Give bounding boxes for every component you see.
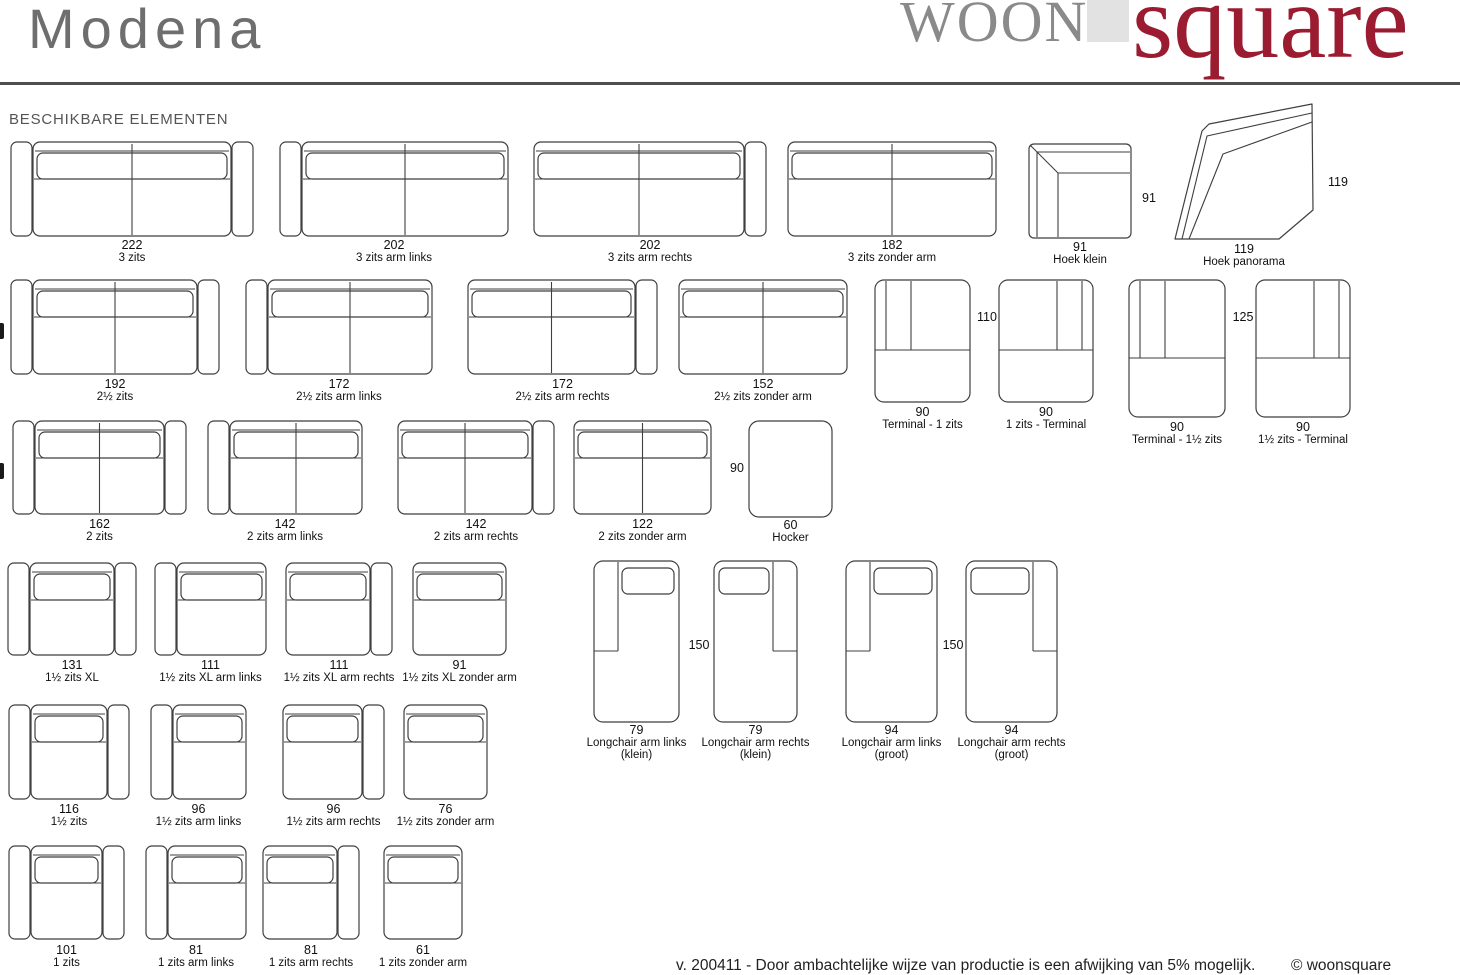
element-name2: (klein): [701, 749, 809, 762]
element-dim: 111: [284, 659, 395, 672]
element-label: 1311½ zits XL: [45, 659, 99, 684]
catalog-page: Modena WOON square BESCHIKBARE ELEMENTEN…: [0, 0, 1460, 974]
element-name: 2 zits arm links: [247, 531, 323, 544]
sofa-drawing: [573, 420, 712, 515]
sofa-drawing: [403, 704, 488, 800]
element-label: 2223 zits: [119, 239, 146, 264]
element-label: 811 zits arm rechts: [269, 944, 353, 969]
element-1-zits-arm-links: 811 zits arm links: [145, 845, 247, 940]
element-name: 2½ zits arm links: [296, 391, 382, 404]
element-dim: 172: [516, 378, 610, 391]
element-dim: 122: [598, 518, 686, 531]
sofa-drawing: [154, 562, 267, 656]
element-label: 79Longchair arm links(klein): [587, 724, 687, 762]
element-label: 60Hocker: [772, 519, 808, 544]
element-name: 1 zits arm rechts: [269, 957, 353, 970]
element-2-zits-arm-rechts: 1422 zits arm rechts: [397, 420, 555, 515]
element-name: Hocker: [772, 532, 808, 545]
element-longchair-arm-links-groot: 94Longchair arm links(groot): [845, 560, 938, 723]
element-dim: 202: [356, 239, 432, 252]
element-1half-zits: 1161½ zits: [8, 704, 130, 800]
sofa-drawing: [10, 141, 254, 237]
element-name: 2 zits zonder arm: [598, 531, 686, 544]
element-1half-zits-arm-links: 961½ zits arm links: [150, 704, 247, 800]
element-label: 1111½ zits XL arm links: [159, 659, 261, 684]
element-dim: 96: [156, 803, 242, 816]
element-dim: 94: [957, 724, 1065, 737]
element-dim: 91: [402, 659, 517, 672]
element-1half-zits-xl-arm-rechts: 1111½ zits XL arm rechts: [285, 562, 393, 656]
element-dim: 172: [296, 378, 382, 391]
element-1-zits-terminal: 901 zits - Terminal: [998, 279, 1094, 403]
terminal-drawing: [874, 279, 971, 403]
element-longchair-arm-rechts-groot: 94Longchair arm rechts(groot): [965, 560, 1058, 723]
element-dim: 96: [287, 803, 381, 816]
element-label: 90Terminal - 1½ zits: [1132, 421, 1222, 446]
element-dim: 91: [1053, 241, 1107, 254]
element-name2: (groot): [957, 749, 1065, 762]
element-label: 91Hoek klein: [1053, 241, 1107, 266]
sofa-drawing: [8, 704, 130, 800]
element-name: 1½ zits XL arm links: [159, 672, 261, 685]
element-name: 1½ zits zonder arm: [397, 816, 495, 829]
element-label: 901 zits - Terminal: [1006, 406, 1086, 431]
sofa-drawing: [145, 845, 247, 940]
element-name: 2 zits: [86, 531, 113, 544]
element-name: 3 zits zonder arm: [848, 252, 936, 265]
longchair-drawing: [713, 560, 798, 723]
element-label: 94Longchair arm rechts(groot): [957, 724, 1065, 762]
sofa-drawing: [8, 845, 125, 940]
element-dim: 192: [97, 378, 133, 391]
element-2half-zits-arm-links: 1722½ zits arm links: [245, 279, 433, 375]
hoek-klein-drawing: [1028, 143, 1132, 239]
element-dim: 90: [1006, 406, 1086, 419]
element-name: 1½ zits - Terminal: [1258, 434, 1348, 447]
element-1half-zits-xl-arm-links: 1111½ zits XL arm links: [154, 562, 267, 656]
element-1half-zits-terminal: 901½ zits - Terminal: [1255, 279, 1351, 418]
element-name: 2½ zits arm rechts: [516, 391, 610, 404]
element-dim: 116: [51, 803, 87, 816]
element-name: 1½ zits XL zonder arm: [402, 672, 517, 685]
element-dim: 79: [701, 724, 809, 737]
element-name: 3 zits arm links: [356, 252, 432, 265]
element-label: 1161½ zits: [51, 803, 87, 828]
element-dim: 81: [158, 944, 234, 957]
longchair-drawing: [593, 560, 680, 723]
element-label: 901½ zits - Terminal: [1258, 421, 1348, 446]
element-name2: (klein): [587, 749, 687, 762]
element-3-zits: 2223 zits: [10, 141, 254, 237]
side-dimension: 150: [689, 638, 710, 652]
element-label: 1922½ zits: [97, 378, 133, 403]
element-label: 90Terminal - 1 zits: [882, 406, 963, 431]
element-terminal-1-zits: 90Terminal - 1 zits: [874, 279, 971, 403]
element-name: 2½ zits: [97, 391, 133, 404]
element-1half-zits-xl-zonder-arm: 911½ zits XL zonder arm: [412, 562, 507, 656]
element-name: 2 zits arm rechts: [434, 531, 518, 544]
element-dim: 182: [848, 239, 936, 252]
side-dimension: 150: [943, 638, 964, 652]
sofa-drawing: [282, 704, 385, 800]
element-name: 1 zits zonder arm: [379, 957, 467, 970]
element-label: 1522½ zits zonder arm: [714, 378, 812, 403]
element-dim: 142: [434, 518, 518, 531]
longchair-drawing: [845, 560, 938, 723]
sofa-drawing: [467, 279, 658, 375]
element-2half-zits-arm-rechts: 1722½ zits arm rechts: [467, 279, 658, 375]
sofa-drawing: [262, 845, 360, 940]
element-name: Longchair arm links: [842, 737, 942, 750]
element-dim: 111: [159, 659, 261, 672]
element-name: 1½ zits: [51, 816, 87, 829]
element-name: 3 zits arm rechts: [608, 252, 692, 265]
sofa-drawing: [245, 279, 433, 375]
clipped-edge-mark: [0, 323, 4, 339]
element-name: Longchair arm rechts: [957, 737, 1065, 750]
element-2half-zits: 1922½ zits: [10, 279, 220, 375]
element-longchair-arm-rechts-klein: 79Longchair arm rechts(klein): [713, 560, 798, 723]
element-name: 1½ zits XL arm rechts: [284, 672, 395, 685]
sofa-drawing: [787, 141, 997, 237]
terminal-drawing: [1128, 279, 1226, 418]
element-name: Longchair arm links: [587, 737, 687, 750]
sofa-drawing: [678, 279, 848, 375]
element-dim: 142: [247, 518, 323, 531]
element-hoek-panorama: 119Hoek panorama: [1173, 101, 1315, 241]
element-dim: 202: [608, 239, 692, 252]
element-hocker: 60Hocker: [748, 420, 833, 518]
element-name: 3 zits: [119, 252, 146, 265]
sofa-drawing: [12, 420, 187, 515]
element-1-zits: 1011 zits: [8, 845, 125, 940]
element-label: 1111½ zits XL arm rechts: [284, 659, 395, 684]
sofa-drawing: [150, 704, 247, 800]
element-dim: 81: [269, 944, 353, 957]
element-terminal-1half-zits: 90Terminal - 1½ zits: [1128, 279, 1226, 418]
side-dimension: 125: [1233, 310, 1254, 324]
element-2-zits: 1622 zits: [12, 420, 187, 515]
element-label: 1222 zits zonder arm: [598, 518, 686, 543]
element-2-zits-zonder-arm: 1222 zits zonder arm: [573, 420, 712, 515]
element-dim: 131: [45, 659, 99, 672]
element-dim: 222: [119, 239, 146, 252]
side-dimension: 119: [1328, 175, 1348, 189]
side-dimension: 91: [1142, 191, 1156, 205]
element-name: Hoek klein: [1053, 254, 1107, 267]
element-name: 2½ zits zonder arm: [714, 391, 812, 404]
sofa-drawing: [397, 420, 555, 515]
element-name: Terminal - 1 zits: [882, 419, 963, 432]
element-label: 1722½ zits arm rechts: [516, 378, 610, 403]
element-dim: 90: [1258, 421, 1348, 434]
element-3-zits-arm-rechts: 2023 zits arm rechts: [533, 141, 767, 237]
element-name: 1½ zits arm links: [156, 816, 242, 829]
element-name: 1½ zits XL: [45, 672, 99, 685]
element-label: 811 zits arm links: [158, 944, 234, 969]
clipped-edge-mark: [0, 463, 4, 479]
element-dim: 60: [772, 519, 808, 532]
sofa-drawing: [533, 141, 767, 237]
footer-version-note: v. 200411 - Door ambachtelijke wijze van…: [676, 957, 1255, 975]
element-longchair-arm-links-klein: 79Longchair arm links(klein): [593, 560, 680, 723]
sofa-drawing: [383, 845, 463, 940]
element-hoek-klein: 91Hoek klein: [1028, 143, 1132, 239]
element-label: 2023 zits arm rechts: [608, 239, 692, 264]
terminal-drawing: [998, 279, 1094, 403]
element-dim: 61: [379, 944, 467, 957]
element-dim: 76: [397, 803, 495, 816]
sofa-drawing: [279, 141, 509, 237]
element-1half-zits-xl: 1311½ zits XL: [7, 562, 137, 656]
element-dim: 90: [882, 406, 963, 419]
element-name: 1 zits - Terminal: [1006, 419, 1086, 432]
side-dimension: 90: [730, 461, 744, 475]
element-label: 911½ zits XL zonder arm: [402, 659, 517, 684]
element-name: Terminal - 1½ zits: [1132, 434, 1222, 447]
side-dimension: 110: [977, 310, 997, 324]
sofa-drawing: [207, 420, 363, 515]
element-label: 1011 zits: [53, 944, 80, 969]
element-label: 761½ zits zonder arm: [397, 803, 495, 828]
element-2half-zits-zonder-arm: 1522½ zits zonder arm: [678, 279, 848, 375]
element-2-zits-arm-links: 1422 zits arm links: [207, 420, 363, 515]
element-label: 611 zits zonder arm: [379, 944, 467, 969]
element-label: 1722½ zits arm links: [296, 378, 382, 403]
element-label: 961½ zits arm links: [156, 803, 242, 828]
sofa-drawing: [412, 562, 507, 656]
longchair-drawing: [965, 560, 1058, 723]
elements-canvas: 2223 zits2023 zits arm links2023 zits ar…: [0, 0, 1460, 974]
element-name: Hoek panorama: [1203, 256, 1285, 269]
sofa-drawing: [285, 562, 393, 656]
element-name2: (groot): [842, 749, 942, 762]
element-label: 1422 zits arm rechts: [434, 518, 518, 543]
element-label: 1823 zits zonder arm: [848, 239, 936, 264]
terminal-drawing: [1255, 279, 1351, 418]
element-dim: 79: [587, 724, 687, 737]
element-dim: 101: [53, 944, 80, 957]
element-dim: 152: [714, 378, 812, 391]
element-1-zits-arm-rechts: 811 zits arm rechts: [262, 845, 360, 940]
footer-copyright: © woonsquare: [1291, 957, 1391, 975]
sofa-drawing: [10, 279, 220, 375]
element-label: 2023 zits arm links: [356, 239, 432, 264]
element-1-zits-zonder-arm: 611 zits zonder arm: [383, 845, 463, 940]
element-name: Longchair arm rechts: [701, 737, 809, 750]
element-dim: 119: [1203, 243, 1285, 256]
element-label: 119Hoek panorama: [1203, 243, 1285, 268]
hoek-panorama-drawing: [1173, 101, 1315, 241]
element-name: 1½ zits arm rechts: [287, 816, 381, 829]
element-label: 79Longchair arm rechts(klein): [701, 724, 809, 762]
element-name: 1 zits: [53, 957, 80, 970]
element-label: 961½ zits arm rechts: [287, 803, 381, 828]
element-1half-zits-arm-rechts: 961½ zits arm rechts: [282, 704, 385, 800]
element-dim: 94: [842, 724, 942, 737]
element-3-zits-arm-links: 2023 zits arm links: [279, 141, 509, 237]
element-label: 94Longchair arm links(groot): [842, 724, 942, 762]
element-1half-zits-zonder-arm: 761½ zits zonder arm: [403, 704, 488, 800]
element-3-zits-zonder-arm: 1823 zits zonder arm: [787, 141, 997, 237]
hocker-drawing: [748, 420, 833, 518]
element-label: 1422 zits arm links: [247, 518, 323, 543]
element-name: 1 zits arm links: [158, 957, 234, 970]
sofa-drawing: [7, 562, 137, 656]
element-dim: 162: [86, 518, 113, 531]
element-label: 1622 zits: [86, 518, 113, 543]
element-dim: 90: [1132, 421, 1222, 434]
